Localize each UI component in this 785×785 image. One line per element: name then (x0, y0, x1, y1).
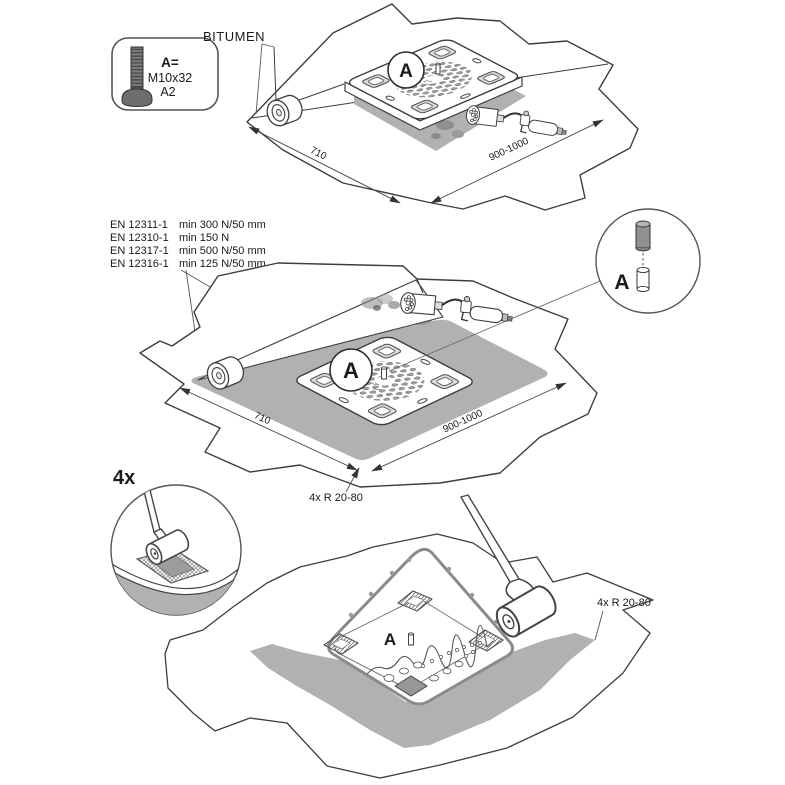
count-label: 4x (113, 467, 135, 489)
standard-value: min 500 N/50 mm (179, 245, 266, 257)
marker-a-label: A (399, 61, 413, 82)
marker-a-label: A (384, 630, 396, 649)
bitumen-label: BITUMEN (203, 29, 265, 44)
legend-box: A= M10x32 A2 (112, 38, 218, 110)
bolt-icon (409, 633, 414, 645)
standard-code: EN 12317-1 (110, 245, 169, 257)
corner-radius-label: 4x R 20-80 (597, 597, 651, 609)
legend-material: A2 (160, 85, 175, 99)
standard-value: min 300 N/50 mm (179, 219, 266, 231)
bitumen-smudge (431, 133, 441, 139)
bitumen-plug-icon (636, 221, 650, 251)
standard-code: EN 12310-1 (110, 232, 169, 244)
roller-detail-callout: 4x (106, 467, 246, 625)
step1-scene: 710 900-1000 A BITUMEN (203, 4, 638, 210)
legend-size: M10x32 (148, 71, 193, 85)
instruction-sheet: A= M10x32 A2 (0, 0, 785, 785)
standard-value: min 150 N (179, 232, 229, 244)
marker-a-label: A (614, 271, 629, 294)
bitumen-smudge (452, 130, 464, 138)
corner-radius-label: 4x R 20-80 (309, 492, 363, 504)
diagram-svg: A= M10x32 A2 (0, 0, 785, 785)
socket-sleeve-icon (637, 267, 649, 291)
marker-a-label: A (343, 358, 359, 383)
standard-code: EN 12311-1 (110, 219, 168, 231)
step2-scene: 710 900-1000 4x R 20-80 A (140, 263, 597, 504)
legend-label: A= (161, 55, 179, 70)
standard-code: EN 12316-1 (110, 258, 169, 270)
